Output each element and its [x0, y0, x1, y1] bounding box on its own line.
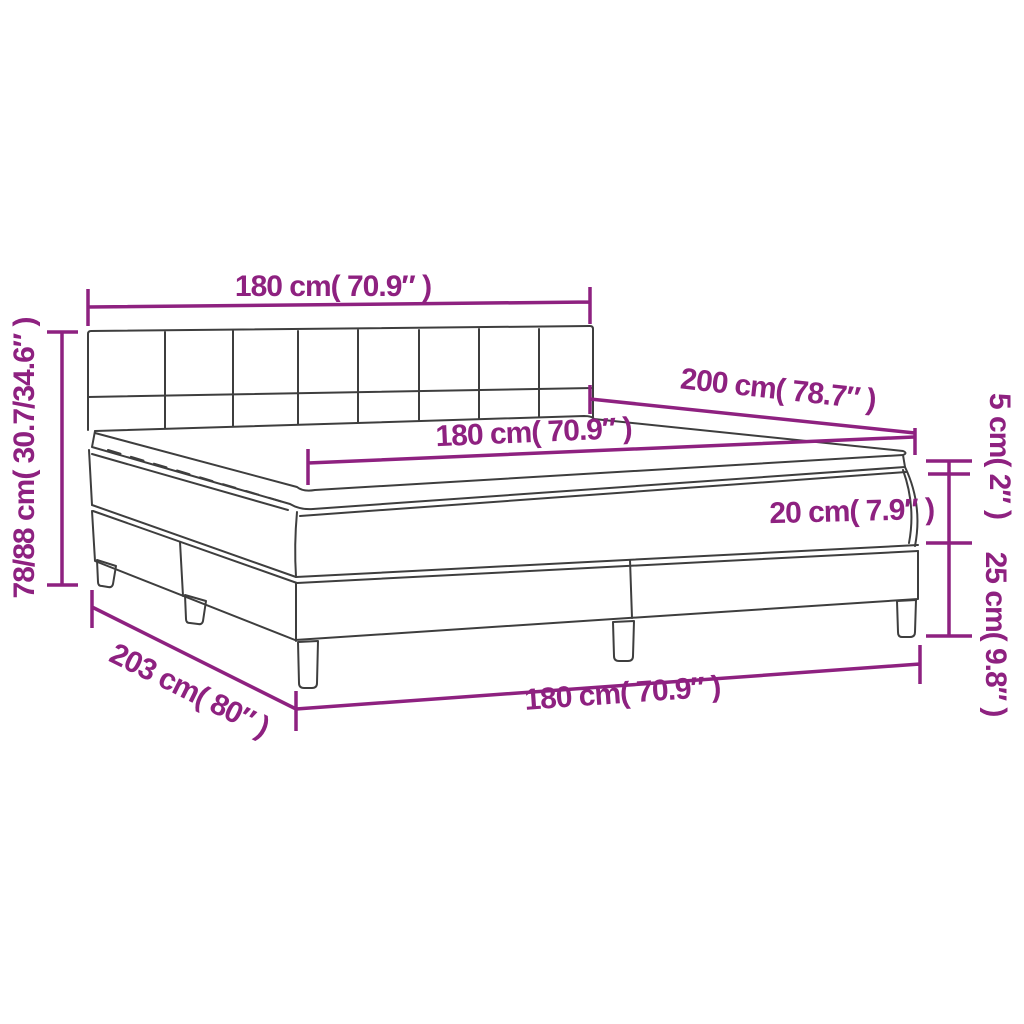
leg-back-left: [97, 560, 116, 587]
box-left-divider: [180, 542, 183, 596]
dim-topper-height-label: 5 cm( 2″ ): [983, 393, 1016, 519]
headboard: [88, 326, 593, 430]
bed-dimension-diagram: 180 cm( 70.9″ ) 78/88 cm( 30.7/34.6″ ) 2…: [0, 0, 1024, 1024]
dim-bed-length: 200 cm( 78.7″ ): [590, 362, 915, 455]
dim-base-height-label: 25 cm( 9.8″ ): [979, 552, 1012, 717]
leg-mid-left: [185, 595, 206, 624]
dim-headboard-width: 180 cm( 70.9″ ): [88, 270, 590, 326]
dim-right-ruler: 5 cm( 2″ ) 25 cm( 9.8″ ): [926, 393, 1016, 716]
dim-base-width: 180 cm( 70.9″ ): [296, 645, 920, 717]
dim-mattress-height-label: 20 cm( 7.9″ ): [769, 493, 935, 530]
mattress-front-left-corner: [295, 512, 297, 577]
headboard-panel-dividers: [165, 329, 539, 428]
dim-total-length-label: 203 cm( 80″ ): [104, 637, 274, 744]
dim-base-width-label: 180 cm( 70.9″ ): [523, 670, 721, 717]
box-outline: [92, 511, 918, 641]
dim-mattress-width-label: 180 cm( 70.9″ ): [435, 412, 632, 454]
box-front-divider: [630, 560, 632, 618]
leg-front-right: [897, 600, 916, 637]
dim-total-length: 203 cm( 80″ ): [92, 590, 296, 744]
legs: [97, 560, 916, 688]
leg-front-mid: [613, 621, 634, 661]
dim-bed-height-label: 78/88 cm( 30.7/34.6″ ): [8, 318, 41, 599]
dim-bed-height-line: [47, 332, 78, 585]
leg-front-left: [298, 641, 318, 688]
mattress-left-edge: [89, 450, 92, 505]
headboard-row-divider: [88, 388, 593, 397]
headboard-outline: [88, 326, 593, 430]
dim-bed-length-label: 200 cm( 78.7″ ): [679, 362, 878, 416]
dim-bed-height: 78/88 cm( 30.7/34.6″ ): [8, 318, 78, 599]
dim-right-ruler-line: [926, 461, 972, 636]
diagram-canvas: 180 cm( 70.9″ ) 78/88 cm( 30.7/34.6″ ) 2…: [0, 0, 1024, 1024]
dim-headboard-width-label: 180 cm( 70.9″ ): [235, 270, 431, 303]
box-base: [92, 511, 918, 641]
dimension-annotations: 180 cm( 70.9″ ) 78/88 cm( 30.7/34.6″ ) 2…: [8, 270, 1016, 744]
dim-mattress-height: 20 cm( 7.9″ ): [769, 493, 935, 530]
